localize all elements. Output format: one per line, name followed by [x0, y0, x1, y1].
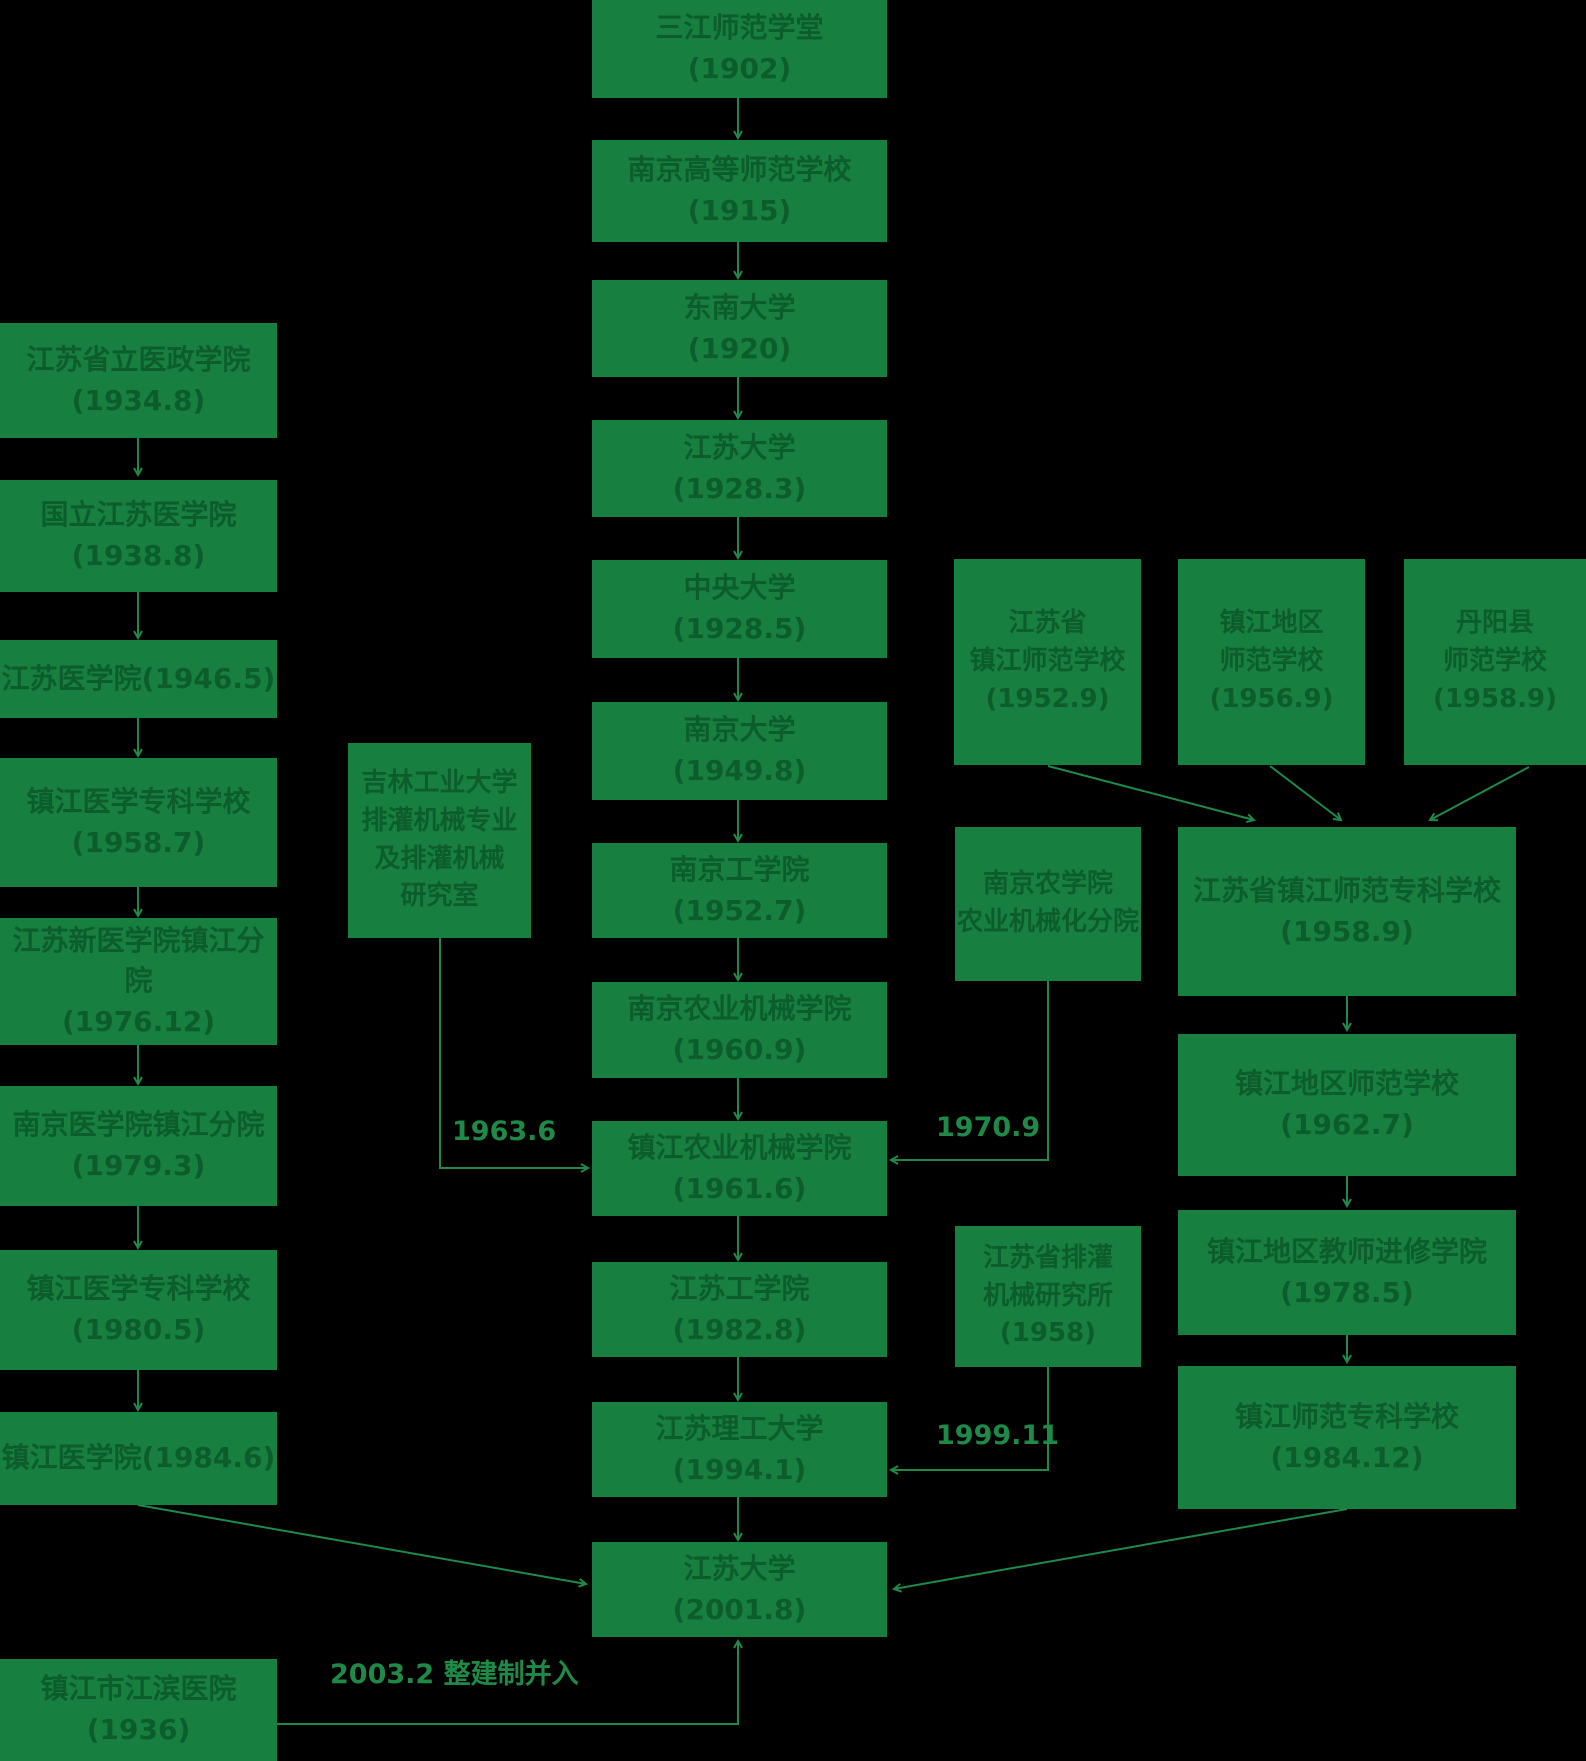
- node-zhenjiang-yizhuan-1980: 镇江医学专科学校(1980.5): [0, 1250, 277, 1370]
- edge-diqushifan-to-shizhuan: [1270, 766, 1341, 820]
- node-text-line: 排灌机械专业: [361, 803, 517, 841]
- node-text-line: (1978.5): [1280, 1273, 1414, 1314]
- node-text-line: (1928.5): [673, 609, 807, 650]
- node-text-line: 镇江农业机械学院: [627, 1128, 851, 1169]
- label-1999: 1999.11: [936, 1420, 1059, 1451]
- node-text-line: (1958.9): [1433, 681, 1557, 719]
- node-text-line: 三江师范学堂: [655, 8, 823, 49]
- node-text-line: 师范学校: [1443, 643, 1547, 681]
- node-zhenjiang-yizhuan-1958: 镇江医学专科学校(1958.7): [0, 758, 277, 887]
- node-text-line: 国立江苏医学院: [40, 495, 236, 536]
- node-nanjing-nongji-1960: 南京农业机械学院(1960.9): [592, 982, 887, 1078]
- node-text-line: (1952.9): [985, 681, 1109, 719]
- node-text-line: 镇江医学专科学校: [26, 1269, 250, 1310]
- node-text-line: (1960.9): [673, 1030, 807, 1071]
- node-zhongyang-daxue-1928: 中央大学(1928.5): [592, 560, 887, 658]
- node-jiangbin-yiyuan-1936: 镇江市江滨医院(1936): [0, 1659, 277, 1761]
- node-text-line: (1934.8): [72, 381, 206, 422]
- node-text-line: 镇江医学院(1984.6): [2, 1438, 276, 1479]
- node-jiaoshi-jinxiu-1978: 镇江地区教师进修学院(1978.5): [1178, 1210, 1516, 1335]
- node-jiangsu-gongxueyuan-1982: 江苏工学院(1982.8): [592, 1262, 887, 1357]
- node-text-line: 江苏省排灌: [983, 1240, 1113, 1278]
- node-text-line: 农业机械化分院: [957, 904, 1139, 942]
- node-text-line: 镇江地区师范学校: [1235, 1064, 1459, 1105]
- node-jiangsu-daxue-1928: 江苏大学(1928.3): [592, 420, 887, 517]
- node-text-line: 江苏工学院: [669, 1269, 809, 1310]
- node-zhenjiang-shizhuan-1958: 江苏省镇江师范专科学校(1958.9): [1178, 827, 1516, 996]
- node-text-line: 南京大学: [683, 710, 795, 751]
- node-text-line: 江苏大学: [683, 428, 795, 469]
- node-nanyi-zhenjiang-fenyuan-1979: 南京医学院镇江分院(1979.3): [0, 1086, 277, 1206]
- node-text-line: 江苏省立医政学院: [26, 340, 250, 381]
- node-jilin-paiguan-1963: 吉林工业大学排灌机械专业及排灌机械研究室: [348, 743, 531, 938]
- node-text-line: 师范学校: [1219, 643, 1323, 681]
- node-text-line: (1938.8): [72, 536, 206, 577]
- node-text-line: (1956.9): [1209, 681, 1333, 719]
- node-jiangsu-daxue-2001: 江苏大学(2001.8): [592, 1542, 887, 1637]
- node-text-line: 镇江地区: [1219, 605, 1323, 643]
- node-text-line: 镇江市江滨医院: [40, 1669, 236, 1710]
- node-text-line: 南京高等师范学校: [627, 150, 851, 191]
- node-nongxueyuan-fenyuan: 南京农学院农业机械化分院: [955, 827, 1141, 981]
- edge-danyang-to-shizhuan: [1430, 767, 1529, 820]
- edge-shizhuan1984-to-jiangsudaxue2001: [894, 1509, 1347, 1589]
- node-zhenjiang-yixueyuan-1984: 镇江医学院(1984.6): [0, 1412, 277, 1505]
- node-text-line: (1980.5): [72, 1310, 206, 1351]
- node-text-line: 江苏理工大学: [655, 1409, 823, 1450]
- node-text-line: (1984.12): [1270, 1438, 1423, 1479]
- node-text-line: (1961.6): [673, 1169, 807, 1210]
- node-text-line: 中央大学: [683, 568, 795, 609]
- node-text-line: (1920): [688, 329, 792, 370]
- node-text-line: (1949.8): [673, 751, 807, 792]
- node-text-line: (1958): [1000, 1315, 1096, 1353]
- edge-yanjiusuo-1999-merge: [891, 1367, 1048, 1470]
- node-zhenjiang-shifan-1952: 江苏省镇江师范学校(1952.9): [954, 559, 1141, 765]
- node-text-line: 镇江师范学校: [969, 643, 1125, 681]
- node-text-line: 南京工学院: [669, 850, 809, 891]
- node-nanjing-gaoshi-1915: 南京高等师范学校(1915): [592, 140, 887, 242]
- node-text-line: (1902): [688, 49, 792, 90]
- university-history-flowchart: 三江师范学堂(1902)南京高等师范学校(1915)东南大学(1920)江苏大学…: [0, 0, 1586, 1761]
- node-xinyi-zhenjiang-fenyuan-1976: 江苏新医学院镇江分院(1976.12): [0, 918, 277, 1045]
- node-text-line: 及排灌机械: [374, 841, 504, 879]
- node-text-line: 东南大学: [683, 288, 795, 329]
- node-text-line: 镇江医学专科学校: [26, 782, 250, 823]
- node-guoli-jiangsu-yixueyuan-1938: 国立江苏医学院(1938.8): [0, 480, 277, 592]
- node-text-line: 吉林工业大学: [361, 765, 517, 803]
- label-1970: 1970.9: [936, 1112, 1040, 1143]
- label-1963: 1963.6: [452, 1116, 556, 1147]
- node-yizheng-xueyuan-1934: 江苏省立医政学院(1934.8): [0, 323, 277, 438]
- node-jiangsu-yixueyuan-1946: 江苏医学院(1946.5): [0, 640, 277, 718]
- node-text-line: (1915): [688, 191, 792, 232]
- node-diqu-shifan-1962: 镇江地区师范学校(1962.7): [1178, 1034, 1516, 1176]
- node-text-line: (1976.12): [62, 1002, 215, 1043]
- node-text-line: 丹阳县: [1456, 605, 1534, 643]
- node-text-line: (1952.7): [673, 891, 807, 932]
- node-text-line: 南京农学院: [983, 866, 1113, 904]
- node-text-line: (1928.3): [673, 469, 807, 510]
- node-jiangsu-ligong-1994: 江苏理工大学(1994.1): [592, 1402, 887, 1497]
- node-text-line: (1936): [87, 1710, 191, 1751]
- node-nanjing-gongxueyuan-1952: 南京工学院(1952.7): [592, 843, 887, 938]
- node-text-line: 南京农业机械学院: [627, 989, 851, 1030]
- node-nanjing-daxue-1949: 南京大学(1949.8): [592, 702, 887, 800]
- node-text-line: 江苏省镇江师范专科学校: [1193, 871, 1501, 912]
- node-text-line: 镇江地区教师进修学院: [1207, 1232, 1487, 1273]
- node-text-line: (1979.3): [72, 1146, 206, 1187]
- node-zhenjiang-shizhuan-1984: 镇江师范专科学校(1984.12): [1178, 1366, 1516, 1509]
- node-text-line: (1958.9): [1280, 912, 1414, 953]
- node-sanjiang-1902: 三江师范学堂(1902): [592, 0, 887, 98]
- node-text-line: (1994.1): [673, 1450, 807, 1491]
- node-text-line: 江苏医学院(1946.5): [2, 659, 276, 700]
- node-text-line: 机械研究所: [983, 1278, 1113, 1316]
- node-diqu-shifan-1956: 镇江地区师范学校(1956.9): [1178, 559, 1365, 765]
- node-danyang-shifan-1958: 丹阳县师范学校(1958.9): [1404, 559, 1586, 765]
- node-paiguan-yanjiusuo: 江苏省排灌机械研究所(1958): [955, 1226, 1141, 1367]
- node-dongnan-1920: 东南大学(1920): [592, 280, 887, 377]
- node-text-line: 南京医学院镇江分院: [12, 1105, 264, 1146]
- node-text-line: (1982.8): [673, 1310, 807, 1351]
- node-text-line: 江苏新医学院镇江分院: [0, 921, 277, 1002]
- node-text-line: (1958.7): [72, 823, 206, 864]
- label-2003: 2003.2 整建制并入: [330, 1652, 579, 1691]
- node-text-line: 镇江师范专科学校: [1235, 1397, 1459, 1438]
- node-zhenjiang-nongji-1961: 镇江农业机械学院(1961.6): [592, 1121, 887, 1216]
- node-text-line: 江苏大学: [683, 1549, 795, 1590]
- node-text-line: 江苏省: [1008, 605, 1086, 643]
- node-text-line: (1962.7): [1280, 1105, 1414, 1146]
- node-text-line: 研究室: [400, 878, 478, 916]
- node-text-line: (2001.8): [673, 1590, 807, 1631]
- edge-shifan1952-to-shizhuan: [1048, 766, 1254, 820]
- edge-yixueyuan1984-to-jiangsudaxue2001: [138, 1505, 586, 1584]
